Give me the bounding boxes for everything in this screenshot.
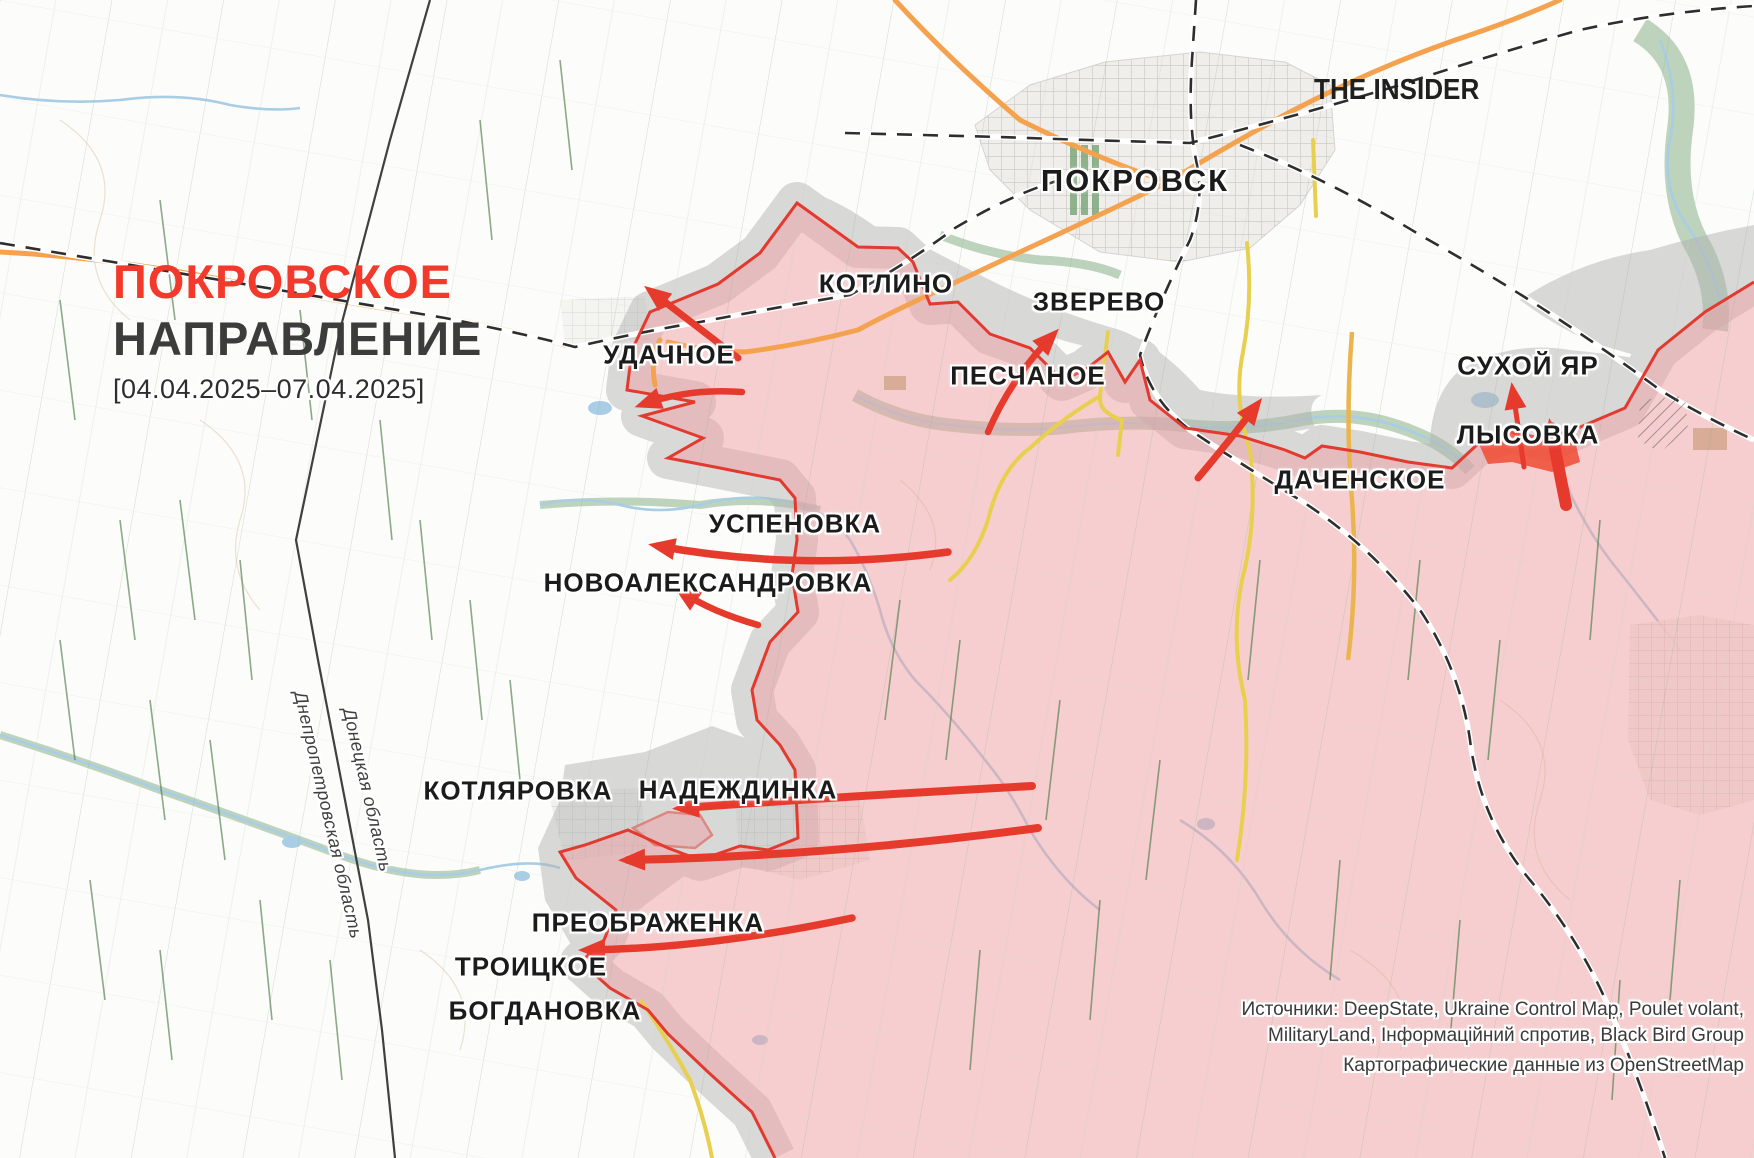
city-label-nadezhdinka: НАДЕЖДИНКА [639, 775, 838, 806]
title-direction-black: НАПРАВЛЕНИЕ [113, 315, 482, 362]
city-label-kotlino: КОТЛИНО [819, 269, 953, 300]
publisher-logo: THE INSIDER [1314, 74, 1479, 107]
city-label-troitskoe: ТРОИЦКОЕ [455, 952, 607, 983]
title-date-range: [04.04.2025–07.04.2025] [113, 376, 482, 403]
city-label-preobrazhenka: ПРЕОБРАЖЕНКА [532, 908, 764, 939]
city-label-sukhoy-yar: СУХОЙ ЯР [1457, 351, 1598, 382]
field-pattern [0, 0, 1754, 1158]
city-label-dachenskoe: ДАЧЕНСКОЕ [1275, 465, 1446, 496]
city-label-pokrovsk: ПОКРОВСК [1041, 163, 1229, 199]
attribution-osm: Картографические данные из OpenStreetMap [1241, 1053, 1744, 1079]
title-block: ПОКРОВСКОЕ НАПРАВЛЕНИЕ [04.04.2025–07.04… [113, 258, 482, 403]
city-label-kotlyarovka: КОТЛЯРОВКА [424, 776, 613, 807]
city-label-bogdanovka: БОГДАНОВКА [449, 996, 642, 1027]
title-direction-red: ПОКРОВСКОЕ [113, 258, 482, 305]
attribution-sources-line1: Источники: DeepState, Ukraine Control Ma… [1241, 997, 1744, 1023]
attribution-block: Источники: DeepState, Ukraine Control Ma… [1241, 997, 1744, 1079]
city-label-novoaleksandrovka: НОВОАЛЕКСАНДРОВКА [544, 568, 873, 599]
map-infographic: ПОКРОВСКОЕ НАПРАВЛЕНИЕ [04.04.2025–07.04… [0, 0, 1754, 1158]
city-label-zverevo: ЗВЕРЕВО [1033, 287, 1165, 318]
city-label-lysovka: ЛЫСОВКА [1457, 420, 1599, 451]
city-label-uspenovka: УСПЕНОВКА [709, 509, 881, 540]
map-canvas [0, 0, 1754, 1158]
city-label-peschanoe: ПЕСЧАНОЕ [950, 361, 1106, 392]
city-label-udachnoe: УДАЧНОЕ [603, 340, 735, 371]
attribution-sources-line2: MilitaryLand, Інформаційний спротив, Bla… [1241, 1023, 1744, 1049]
